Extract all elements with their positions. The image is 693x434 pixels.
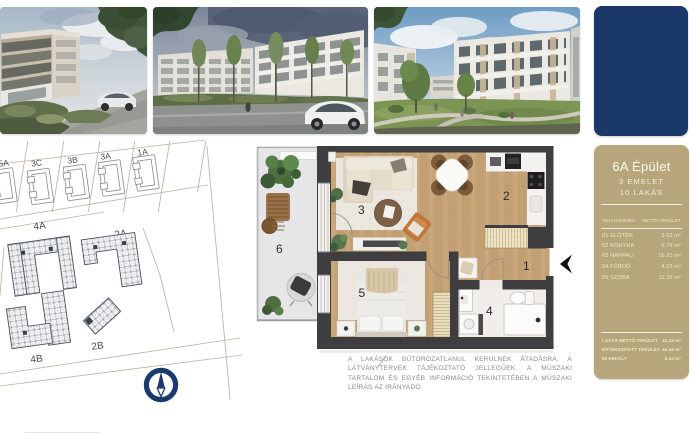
- svg-text:4B: 4B: [30, 353, 44, 366]
- svg-text:3: 3: [358, 203, 365, 217]
- svg-text:3C: 3C: [31, 157, 43, 168]
- svg-text:2: 2: [503, 189, 510, 203]
- svg-text:3A: 3A: [100, 150, 112, 161]
- svg-text:2B: 2B: [91, 340, 105, 353]
- svg-text:1A: 1A: [137, 146, 149, 157]
- svg-text:4A: 4A: [33, 220, 47, 233]
- svg-text:5A: 5A: [0, 157, 10, 168]
- svg-text:3B: 3B: [67, 154, 79, 165]
- svg-text:1: 1: [523, 259, 530, 273]
- svg-text:6: 6: [276, 242, 283, 256]
- svg-text:5: 5: [359, 286, 366, 300]
- svg-text:4: 4: [486, 304, 493, 318]
